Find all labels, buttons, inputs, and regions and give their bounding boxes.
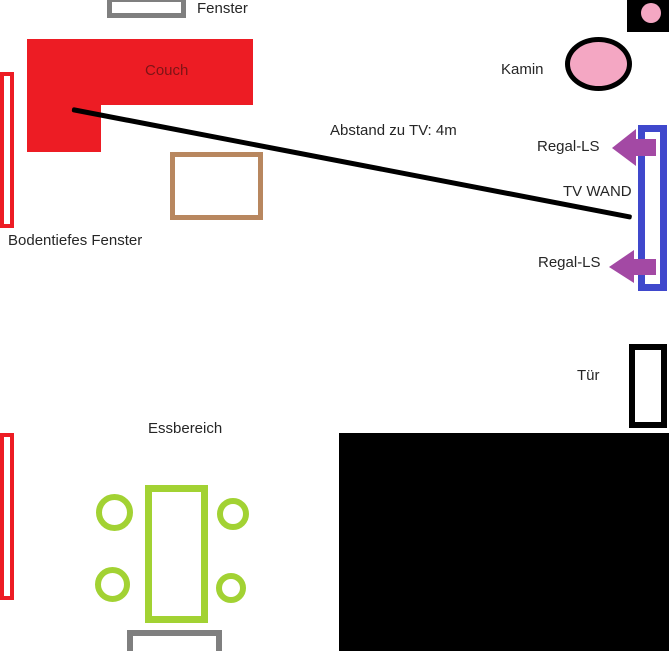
window-top-label: Fenster [197,1,248,16]
arrow-shaft [634,139,656,156]
couch-label: Couch [145,63,188,78]
door-label: Tür [577,368,600,383]
corner-dot-shape [641,3,661,23]
sideboard-shape [127,630,222,651]
tv-distance-label: Abstand zu TV: 4m [330,123,457,138]
tv-wall-label: TV WAND [563,184,632,199]
couch-shape-main [27,39,253,105]
coffee-table-shape [170,152,263,220]
floor-window-label: Bodentiefes Fenster [8,233,142,248]
dining-chair-bottom-right [216,573,246,603]
dining-area-label: Essbereich [148,421,222,436]
dining-chair-top-left [96,494,133,531]
arrow-shaft [632,259,656,275]
floor-window-bottom-shape [0,433,14,600]
window-top-shape [107,0,186,18]
dining-table-shape [145,485,208,623]
arrow-head [609,250,634,283]
door-shape [629,344,667,428]
dining-chair-bottom-left [95,567,130,602]
fireplace-shape [565,37,632,91]
corner-block-shape [627,0,669,32]
blacked-out-area [339,433,669,651]
shelf-speaker-arrow-bottom-icon [609,250,656,283]
fireplace-label: Kamin [501,62,544,77]
shelf-speaker-bottom-label: Regal-LS [538,255,601,270]
arrow-head [612,129,636,166]
shelf-speaker-top-label: Regal-LS [537,139,600,154]
floor-window-top-shape [0,72,14,228]
dining-chair-top-right [217,498,249,530]
floor-plan-canvas: Fenster Couch Bodentiefes Fenster Kamin … [0,0,669,651]
shelf-speaker-arrow-top-icon [612,129,656,166]
